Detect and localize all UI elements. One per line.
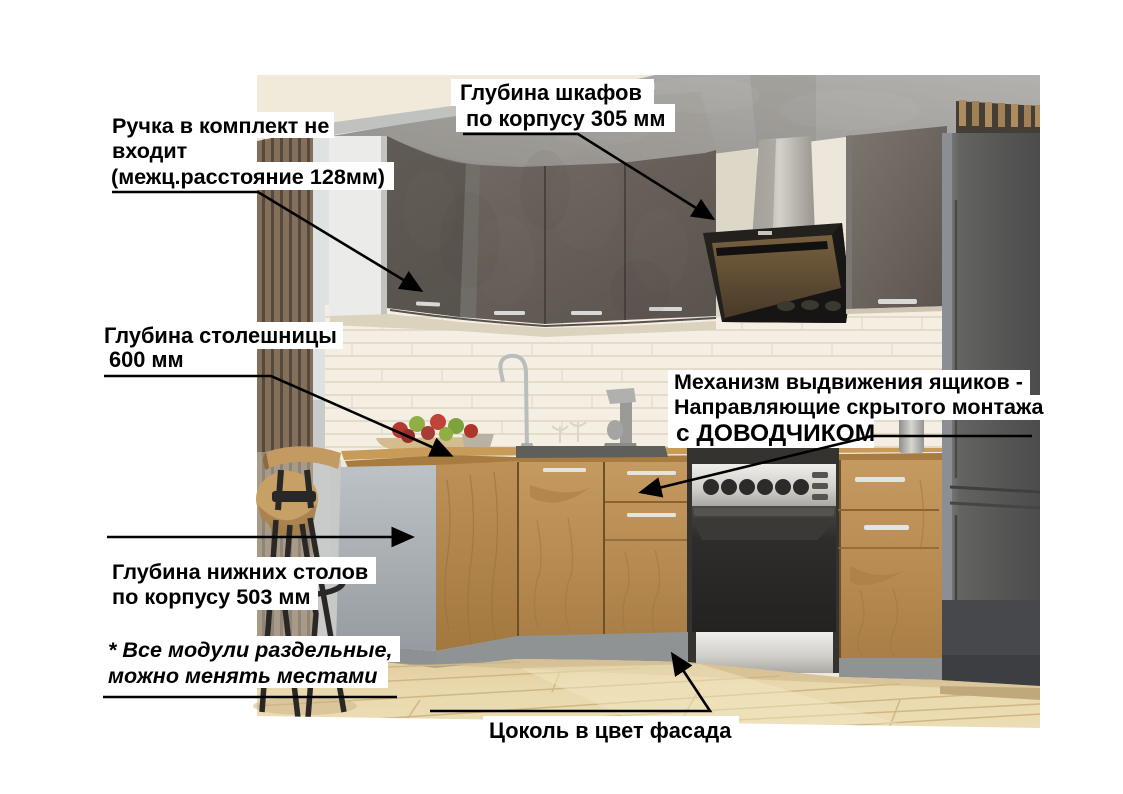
- svg-text:по корпусу 305 мм: по корпусу 305 мм: [466, 106, 666, 131]
- svg-text:Глубина шкафов: Глубина шкафов: [460, 80, 642, 105]
- svg-text:Направляющие скрытого монтажа: Направляющие скрытого монтажа: [674, 395, 1044, 419]
- svg-text:Глубина нижних столов: Глубина нижних столов: [112, 559, 368, 584]
- svg-text:Механизм выдвижения ящиков -: Механизм выдвижения ящиков -: [674, 370, 1023, 394]
- svg-text:можно менять местами: можно менять местами: [108, 663, 377, 688]
- svg-text:по корпусу 503 мм: по корпусу 503 мм: [112, 584, 311, 609]
- svg-text:Глубина столешницы: Глубина столешницы: [104, 323, 337, 348]
- svg-text:* Все модули раздельные,: * Все модули раздельные,: [108, 637, 392, 662]
- svg-text:входит: входит: [112, 138, 187, 163]
- svg-text:Цоколь в цвет фасада: Цоколь в цвет фасада: [489, 718, 732, 743]
- svg-text:(межц.расстояние 128мм): (межц.расстояние 128мм): [111, 164, 385, 189]
- svg-text:600 мм: 600 мм: [109, 347, 184, 372]
- svg-text:Ручка в комплект не: Ручка в комплект не: [112, 113, 329, 138]
